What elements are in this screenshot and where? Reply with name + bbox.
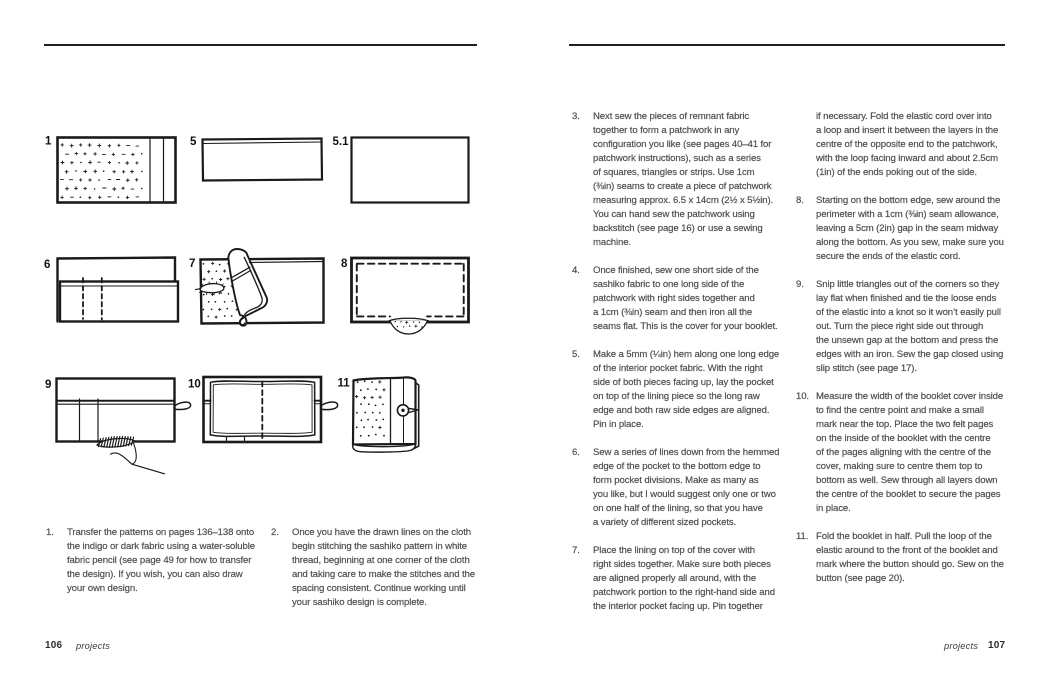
svg-text:1: 1 (45, 136, 52, 148)
svg-text:10: 10 (188, 379, 201, 391)
svg-text:11: 11 (338, 378, 351, 390)
svg-text:8: 8 (341, 258, 348, 270)
svg-text:6: 6 (44, 259, 50, 271)
svg-text:7: 7 (189, 258, 195, 270)
svg-text:5: 5 (190, 136, 197, 148)
svg-text:5.1: 5.1 (333, 136, 350, 148)
svg-text:9: 9 (45, 379, 51, 391)
